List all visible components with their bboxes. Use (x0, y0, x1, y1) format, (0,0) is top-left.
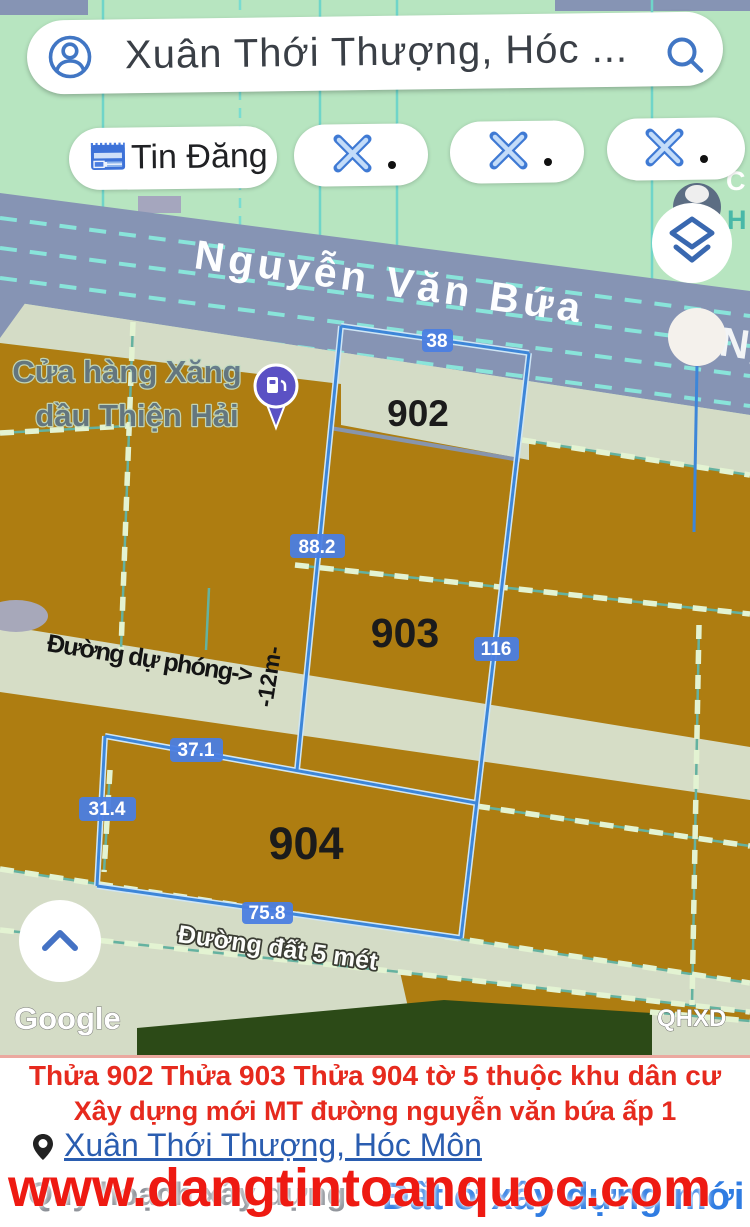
svg-text:QHXD: QHXD (657, 1005, 726, 1032)
svg-text:Google: Google (14, 1001, 121, 1036)
svg-text:Cửa hàng Xăng: Cửa hàng Xăng (12, 354, 241, 389)
svg-text:902: 902 (387, 393, 449, 434)
svg-text:88.2: 88.2 (299, 537, 336, 558)
svg-text:75.8: 75.8 (249, 903, 286, 924)
svg-text:37.1: 37.1 (178, 740, 215, 761)
svg-text:904: 904 (268, 818, 343, 869)
svg-text:31.4: 31.4 (89, 799, 126, 820)
svg-text:C: C (726, 166, 746, 196)
svg-text:dầu Thiện Hải: dầu Thiện Hải (35, 398, 238, 433)
svg-text:116: 116 (481, 639, 512, 660)
svg-text:903: 903 (371, 610, 439, 656)
svg-text:38: 38 (426, 331, 447, 352)
